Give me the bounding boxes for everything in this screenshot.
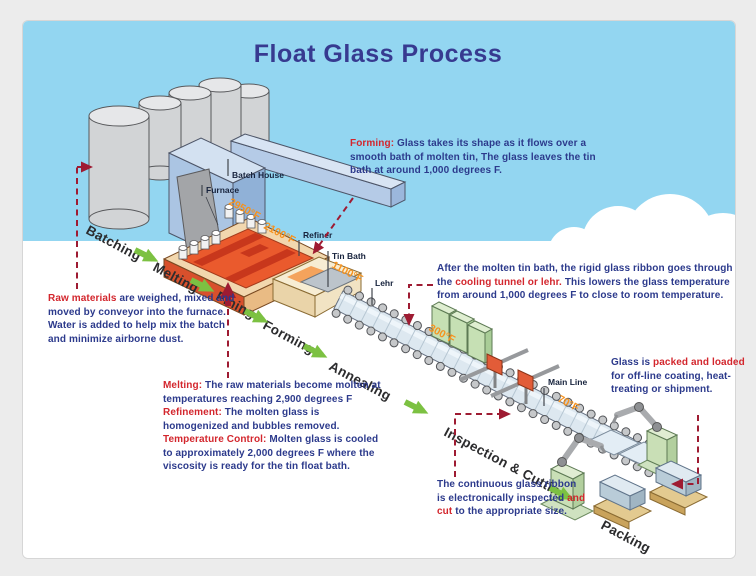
lehr-label: Lehr [375, 278, 394, 288]
annotation-packing-body1: Glass is [611, 357, 653, 368]
annotation-cooling-lead: cooling tunnel or lehr. [455, 277, 562, 288]
page-title: Float Glass Process [22, 40, 734, 69]
annotation-inspection: The continuous glass ribbon is electroni… [437, 478, 587, 519]
annotation-forming: Forming: Glass takes its shape as it flo… [350, 137, 602, 178]
annotation-melting-refinement: Melting: The raw materials become molten… [163, 379, 383, 474]
annotation-packing-body2: for off-line coating, heat-treating or s… [611, 371, 731, 396]
annotation-raw-materials: Raw materials are weighed, mixed and mov… [48, 292, 240, 346]
annotation-inspection-body1: The continuous glass ribbon is electroni… [437, 479, 576, 504]
furnace-label: Furnace [206, 185, 239, 195]
batch-house-label: Batch House [232, 170, 284, 180]
refiner-label: Refiner [303, 230, 333, 240]
annotation-packing-lead: packed and loaded [653, 357, 745, 368]
annotation-packing: Glass is packed and loaded for off-line … [611, 356, 747, 397]
annotation-inspection-body2: to the appropriate size. [452, 506, 567, 517]
annotation-temp-control-lead: Temperature Control: [163, 434, 267, 445]
main-line-label: Main Line [548, 377, 587, 387]
annotation-raw-lead: Raw materials [48, 293, 117, 304]
annotation-forming-lead: Forming: [350, 138, 394, 149]
annotation-melting-line: Melting: The raw materials become molten… [163, 379, 383, 406]
annotation-temp-control-line: Temperature Control: Molten glass is coo… [163, 433, 383, 474]
annotation-refinement-lead: Refinement: [163, 407, 222, 418]
annotation-cooling: After the molten tin bath, the rigid gla… [437, 262, 735, 303]
annotation-refinement-line: Refinement: The molten glass is homogeni… [163, 406, 383, 433]
annotation-melting-lead: Melting: [163, 380, 202, 391]
